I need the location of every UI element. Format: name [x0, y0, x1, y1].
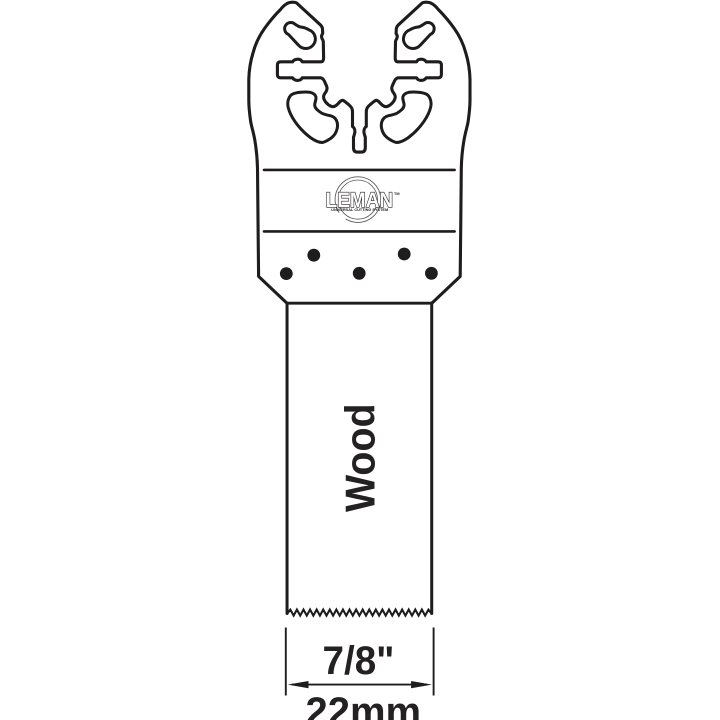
svg-text:TM: TM: [394, 192, 399, 196]
svg-text:22mm: 22mm: [305, 690, 421, 720]
svg-text:7/8": 7/8": [323, 639, 395, 683]
svg-text:UNIVERSAL CUTTING SYSTEM: UNIVERSAL CUTTING SYSTEM: [331, 208, 388, 212]
svg-text:Wood: Wood: [336, 404, 383, 513]
